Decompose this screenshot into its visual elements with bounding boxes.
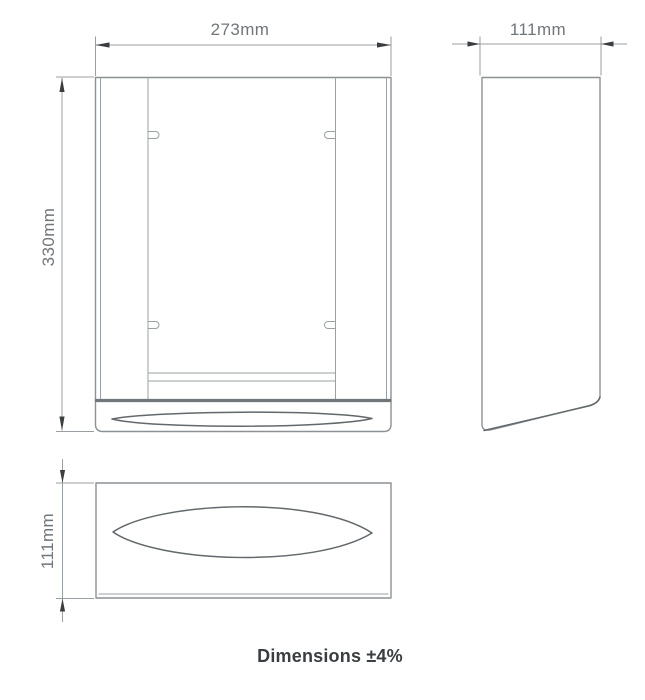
plan-outer-body [96, 483, 391, 598]
mount-tab-top-left [148, 132, 159, 139]
arrowhead-top [59, 78, 64, 92]
arrowhead-left [96, 42, 110, 47]
side-bottom-slant [484, 397, 600, 431]
front-outer-body [96, 78, 392, 432]
plan-depth-dimension-label: 111mm [38, 501, 58, 581]
front-height-dimension-label: 330mm [39, 197, 59, 277]
front-width-dimension-label: 273mm [200, 20, 280, 40]
dimension-330 [56, 77, 94, 432]
plan-view [96, 483, 391, 598]
arrowhead-top [60, 470, 65, 483]
dimension-111-side [452, 37, 627, 76]
dimension-111-plan [56, 459, 94, 622]
front-opening-lens [112, 412, 372, 426]
mount-tab-bottom-left [148, 322, 159, 329]
front-view [96, 78, 392, 432]
arrowhead-right [377, 42, 391, 47]
mount-tab-top-right [325, 132, 336, 139]
arrowhead-bottom [60, 599, 65, 612]
side-view [482, 78, 600, 431]
dimension-273 [96, 37, 392, 77]
side-outer-body [482, 78, 600, 431]
mount-tab-bottom-right [325, 322, 336, 329]
arrowhead-right [601, 41, 614, 46]
plan-opening-lens [113, 507, 372, 558]
arrowhead-left [468, 41, 481, 46]
arrowhead-bottom [59, 417, 64, 431]
line-art [0, 0, 645, 700]
tolerance-note: Dimensions ±4% [230, 646, 430, 667]
side-depth-dimension-label: 111mm [498, 20, 578, 40]
dimension-drawing-page: 273mm 330mm 111mm 111mm Dimensions ±4% [0, 0, 645, 700]
